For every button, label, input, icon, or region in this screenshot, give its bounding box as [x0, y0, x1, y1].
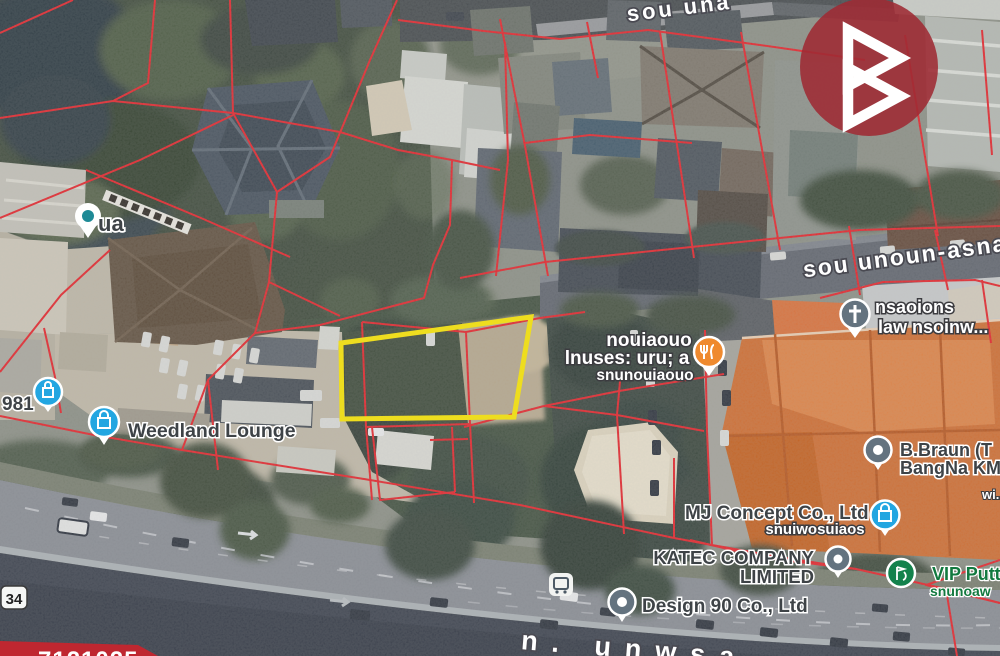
svg-text:BangNa KM: BangNa KM	[900, 458, 1000, 478]
svg-text:B.Braun (T: B.Braun (T	[900, 440, 992, 460]
svg-text:34: 34	[6, 591, 23, 608]
svg-text:MJ Concept Co., Ltd: MJ Concept Co., Ltd	[685, 503, 869, 524]
svg-text:LIMITED: LIMITED	[740, 566, 814, 587]
svg-text:981: 981	[2, 394, 34, 415]
svg-text:Design 90 Co., Ltd: Design 90 Co., Ltd	[642, 596, 808, 617]
svg-text:lnuses: uru; a: lnuses: uru; a	[565, 348, 690, 369]
svg-text:ua: ua	[98, 211, 124, 236]
svg-text:law nsoinw...: law nsoinw...	[878, 317, 988, 337]
svg-text:Weedland Lounge: Weedland Lounge	[128, 420, 296, 442]
svg-text:VIP Putt: VIP Putt	[932, 564, 1000, 584]
svg-text:snunouiaouo: snunouiaouo	[596, 367, 693, 384]
svg-text:wi...: wi...	[981, 487, 1000, 502]
svg-text:7121025: 7121025	[38, 647, 138, 656]
svg-text:nsaoions: nsaoions	[875, 297, 954, 317]
svg-text:snunoaw: snunoaw	[930, 583, 991, 599]
svg-text:KATEC COMPANY: KATEC COMPANY	[653, 547, 814, 568]
